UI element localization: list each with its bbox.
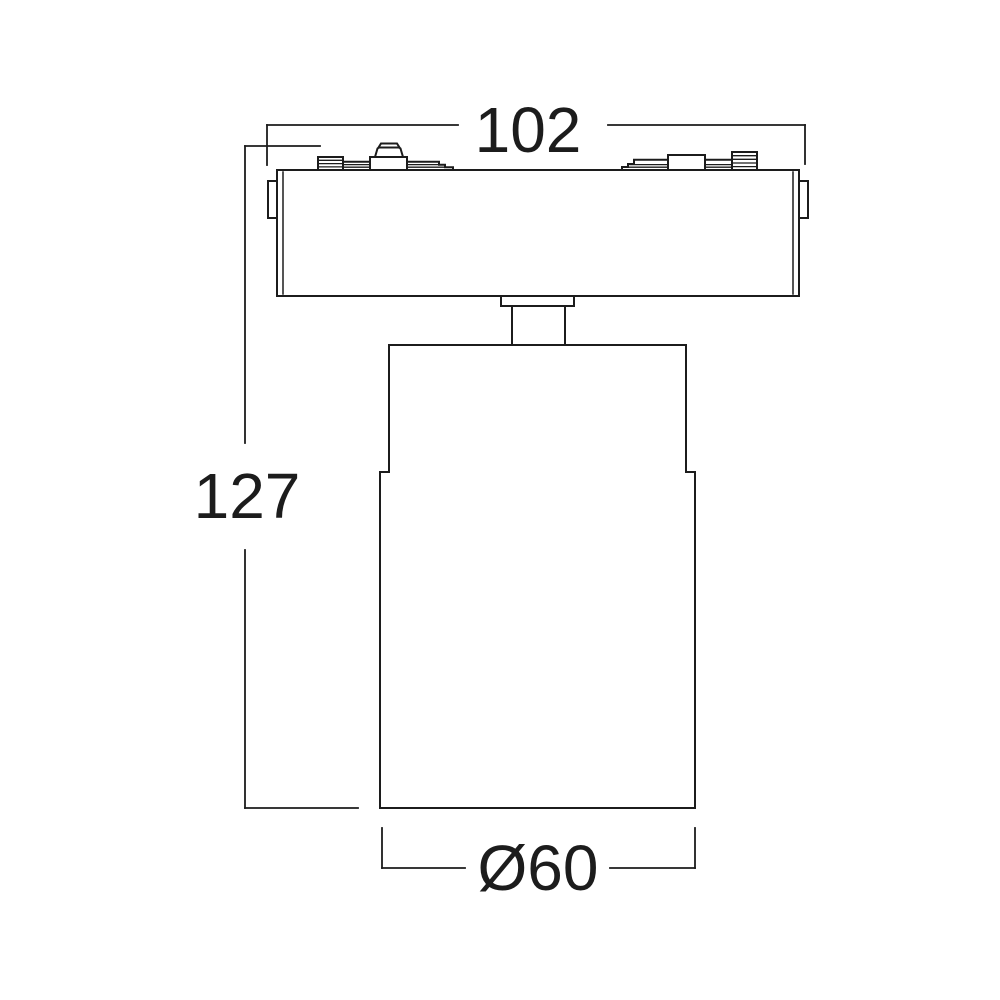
- latch-block: [668, 155, 705, 170]
- fixture-outline: [268, 144, 808, 809]
- knob-base: [375, 148, 403, 158]
- width-dimension-label: 102: [475, 94, 582, 166]
- height-dimension-label: 127: [194, 460, 301, 532]
- diameter-dimension-label: Ø60: [478, 832, 599, 904]
- collar: [501, 296, 574, 306]
- side-tab-right: [799, 181, 808, 218]
- knob-cap: [379, 144, 400, 148]
- track-adapter: [268, 170, 808, 296]
- technical-drawing-canvas: 102 127 Ø60: [0, 0, 1000, 1000]
- adapter-housing: [277, 170, 799, 296]
- side-tab-left: [268, 181, 277, 218]
- track-contacts-left: [318, 144, 453, 171]
- pivot-block: [370, 157, 407, 170]
- track-contacts-right: [622, 152, 757, 170]
- track-light-dimension-drawing: 102 127 Ø60: [0, 0, 1000, 1000]
- contact-block-right: [732, 152, 757, 170]
- stem: [512, 306, 565, 345]
- lamp-body: [380, 345, 695, 808]
